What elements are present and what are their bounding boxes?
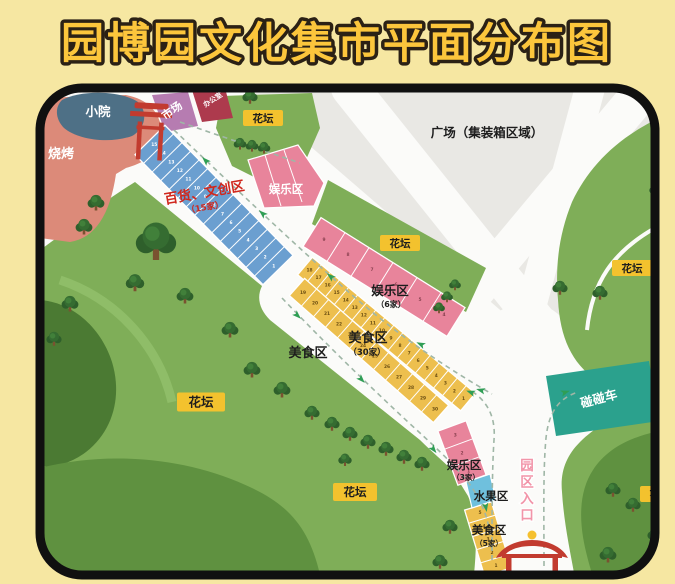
stall-number: 27	[396, 375, 402, 381]
stall-number: 16	[325, 282, 331, 288]
stall-number: 3	[255, 246, 258, 252]
stall-number: 15	[151, 142, 157, 148]
stall-number: 1	[494, 563, 497, 569]
stall-number: 13	[352, 305, 358, 311]
food-main-label: 美食区	[348, 330, 387, 346]
flowerbed-label: 花坛	[344, 485, 367, 499]
food-south-count: （5家）	[475, 538, 503, 548]
stall-number: 8	[346, 252, 349, 258]
entertainment-south-count: （3家）	[452, 472, 480, 482]
flowerbed-label: 花坛	[188, 395, 214, 410]
stall-number: 21	[324, 311, 330, 317]
food-south-label: 美食区	[472, 523, 507, 537]
stall-number: 3	[454, 433, 457, 439]
stall-number: 2	[460, 451, 463, 457]
stall-number: 13	[168, 159, 174, 165]
stall-number: 2	[264, 255, 267, 261]
stall-number: 6	[417, 358, 420, 364]
stall-number: 14	[343, 298, 349, 304]
stall-number: 9	[389, 335, 392, 341]
stall-number: 1	[272, 263, 275, 269]
stall-number: 7	[221, 211, 224, 217]
plaza-label: 广场（集装箱区域）	[431, 125, 544, 140]
flowerbed-label: 花坛	[390, 237, 411, 250]
entertainment-south-label: 娱乐区	[447, 458, 482, 472]
stall-number: 8	[399, 343, 402, 349]
stall-number: 15	[334, 290, 340, 296]
food-main-count: （30家）	[348, 347, 385, 358]
entertainment-mid-label: 娱乐区	[371, 283, 409, 298]
park-market-map: 园博园文化集市平面分布图	[0, 0, 675, 584]
map-canvas: 151413121110987654321 987654 18171615141…	[40, 88, 675, 584]
stall-number: 12	[361, 313, 367, 319]
bbq-label: 烧烤	[48, 146, 74, 162]
stall-number: 4	[247, 237, 250, 243]
stall-number: 1	[462, 396, 465, 402]
courtyard-label: 小院	[84, 104, 111, 119]
stall-number: 4	[435, 373, 438, 379]
stall-number: 26	[384, 364, 390, 370]
stall-number: 19	[300, 290, 306, 296]
stall-number: 5	[238, 229, 241, 235]
stall-number: 20	[312, 300, 318, 306]
entertainment-top-label: 娱乐区	[269, 182, 304, 196]
flowerbed-label: 花坛	[622, 262, 643, 275]
page-title: 园博园文化集市平面分布图	[61, 19, 613, 69]
stall-number: 5	[426, 366, 429, 372]
stall-number: 6	[230, 220, 233, 226]
stall-number: 11	[370, 320, 376, 326]
stall-number: 7	[370, 267, 373, 273]
fruit-label: 水果区	[474, 489, 509, 503]
food-side-label: 美食区	[288, 345, 327, 361]
stall-number: 29	[420, 396, 426, 402]
stall-number: 3	[444, 381, 447, 387]
stall-number: 28	[408, 385, 414, 391]
flowerbed-label: 花坛	[253, 112, 274, 125]
stall-number: 30	[432, 406, 438, 412]
stall-number: 2	[453, 388, 456, 394]
stall-number: 4	[442, 312, 445, 318]
stall-number: 17	[316, 275, 322, 281]
stall-number: 18	[306, 267, 312, 273]
stall-number: 7	[408, 350, 411, 356]
stall-number: 12	[177, 168, 183, 174]
stall-number: 22	[336, 322, 342, 328]
stall-number: 9	[322, 237, 325, 243]
stall-number: 5	[418, 297, 421, 303]
stall-number: 11	[185, 177, 191, 183]
entrance-label: 园区入口	[520, 458, 534, 524]
entertainment-mid-count: （6家）	[376, 299, 406, 309]
stall-number: 5	[478, 510, 481, 516]
